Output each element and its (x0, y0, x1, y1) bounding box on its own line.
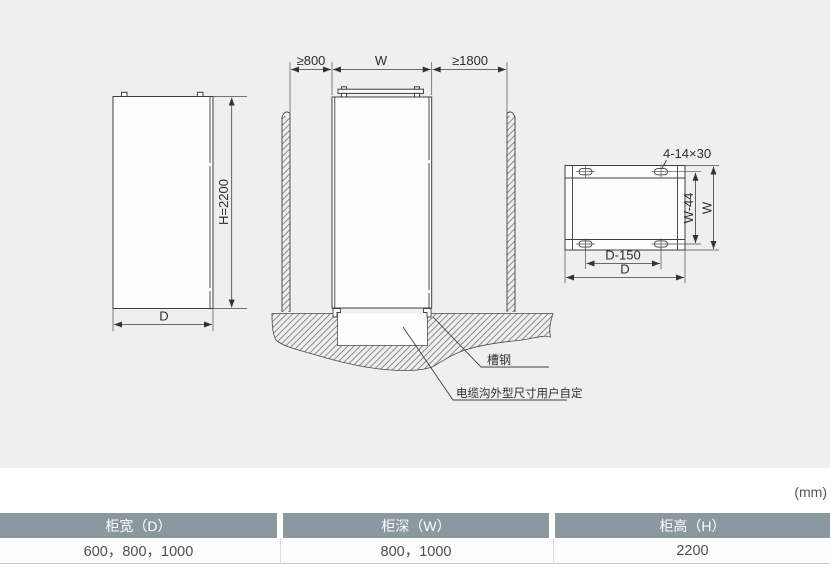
channel-steel-label: 槽钢 (487, 353, 511, 367)
lifting-lug (198, 92, 204, 96)
base-width-label: D (620, 262, 629, 277)
depth-dim-label: D (159, 309, 168, 324)
base-depth-label: W (700, 201, 715, 214)
table-value-cabinet-width: 600，800，1000 (0, 538, 277, 563)
height-dim-label: H=2200 (216, 179, 231, 225)
hole-pitch-depth-label: W-44 (681, 193, 696, 224)
table-value-row: 600，800，1000 800，1000 2200 (0, 538, 830, 564)
table-value-cabinet-height: 2200 (555, 538, 830, 563)
cable-trench-label: 电缆沟外型尺寸用户自定 (456, 386, 583, 400)
table-value-cabinet-depth: 800，1000 (283, 538, 549, 563)
left-clearance-label: ≥800 (297, 53, 326, 68)
table-header-row: 柜宽（D） 柜深（W） 柜高（H） (0, 513, 830, 538)
cabinet-side-outline (113, 97, 213, 309)
roof-plate (338, 89, 424, 93)
cabinet-front-outline (332, 97, 432, 308)
hole-pitch-width-label: D-150 (605, 248, 640, 263)
cable-trench (338, 314, 428, 346)
table-divider (553, 538, 554, 563)
roof-lug (342, 87, 347, 89)
left-wall-hatch (283, 116, 290, 312)
width-label: W (375, 53, 388, 68)
page: H=2200 D ≥800 W ≥1800 (0, 0, 830, 573)
table-header-cabinet-depth: 柜深（W） (283, 513, 549, 538)
installation-drawing: H=2200 D ≥800 W ≥1800 (0, 0, 830, 470)
table-divider (280, 538, 281, 563)
lifting-lug (122, 92, 128, 96)
roof-lug (415, 87, 420, 89)
table-header-cabinet-width: 柜宽（D） (0, 513, 277, 538)
dimension-table: 柜宽（D） 柜深（W） 柜高（H） 600，800，1000 800，1000 … (0, 513, 830, 564)
right-clearance-label: ≥1800 (452, 53, 488, 68)
right-wall-hatch (508, 116, 515, 312)
units-label: (mm) (794, 484, 827, 500)
mounting-holes-label: 4-14×30 (663, 146, 711, 161)
table-header-cabinet-height: 柜高（H） (555, 513, 830, 538)
